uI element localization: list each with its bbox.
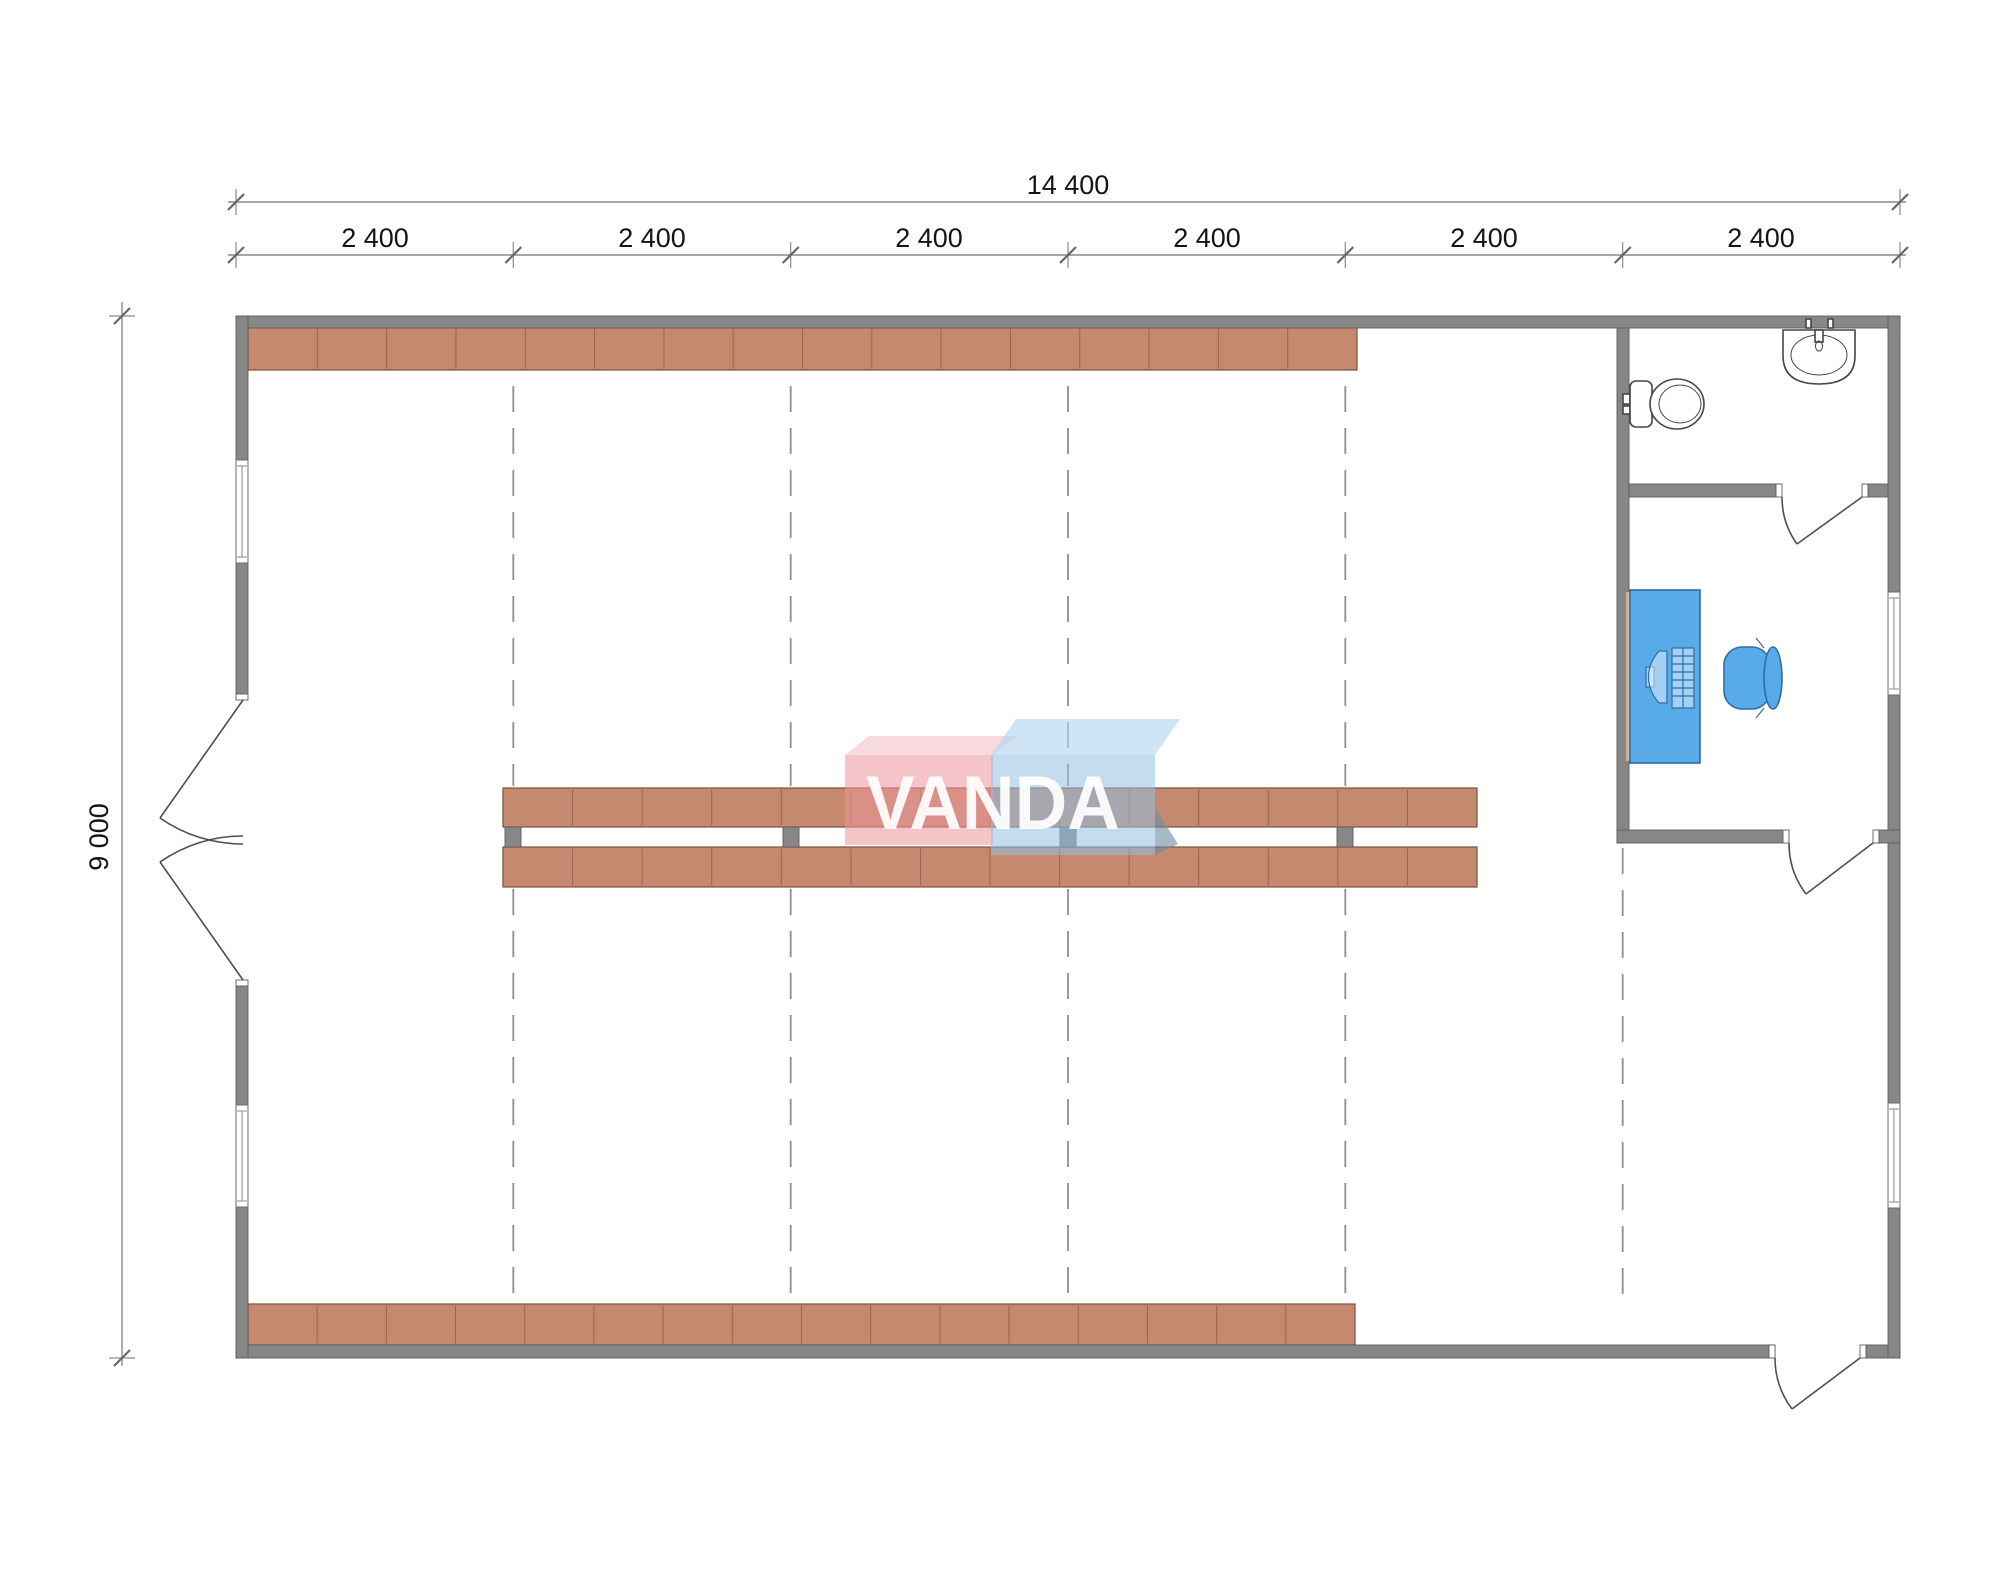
toilet-icon [1623,379,1704,429]
shelf-post [1337,827,1353,847]
window [1888,592,1900,695]
keyboard-icon [1672,648,1694,708]
office-furniture [1626,590,1782,763]
door-swing [1789,843,1873,894]
jamb [1776,484,1782,497]
jamb [1862,484,1868,497]
wall-left [236,986,248,1105]
office-chair [1724,638,1782,718]
wall-office-bottom [1617,830,1783,843]
floor-plan-page: VANDA 14 400 2 400 2 400 2 400 2 400 2 4… [0,0,2000,1574]
jamb [236,980,248,986]
wall-right [1888,316,1900,592]
window [1888,1103,1900,1208]
wall-top [236,316,1900,328]
wall-office-bottom [1879,830,1900,843]
shelf-post [783,827,799,847]
watermark-text: VANDA [866,761,1120,846]
doors [160,497,1873,1409]
window [236,460,248,563]
jamb [1873,830,1879,843]
wall-left [236,1207,248,1358]
door-swing [1775,1358,1860,1409]
jamb [1769,1345,1775,1358]
wall-right [1888,1208,1900,1358]
shelf-post [505,827,521,847]
floor-plan-canvas: VANDA 14 400 2 400 2 400 2 400 2 400 2 4… [0,0,2000,1574]
jamb [236,694,248,700]
dim-label-overall-width: 14 400 [1027,170,1110,200]
wall-bathroom-bottom [1868,484,1888,497]
bathroom-fixtures [1623,319,1855,429]
sink-icon [1783,319,1855,384]
logo-box-blue-top [991,719,1180,755]
double-door [160,700,243,980]
window [236,1105,248,1207]
wall-left [236,563,248,694]
wall-left [236,316,248,460]
dim-label-bay: 2 400 [895,223,963,253]
jamb [1783,830,1789,843]
logo-box-pink-top [845,736,1017,755]
dim-label-bay: 2 400 [1727,223,1795,253]
dim-label-bay: 2 400 [1450,223,1518,253]
dim-label-bay: 2 400 [341,223,409,253]
wall-right [1888,695,1900,1103]
door-swing [1782,497,1862,544]
wall-bathroom-bottom [1629,484,1776,497]
watermark-logo: VANDA [845,719,1180,855]
dim-label-bay: 2 400 [1173,223,1241,253]
dim-label-overall-height: 9 000 [84,803,114,871]
wall-bottom [236,1345,1775,1358]
jamb [1860,1345,1866,1358]
dim-label-bay: 2 400 [618,223,686,253]
